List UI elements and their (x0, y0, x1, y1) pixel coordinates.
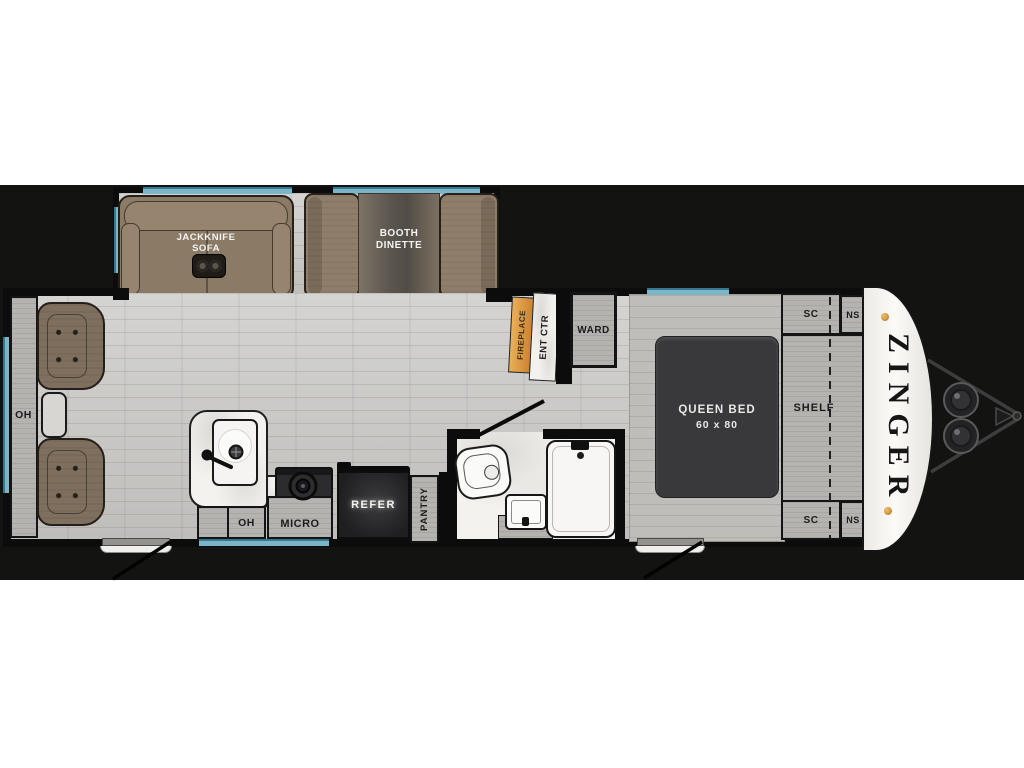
wall-top-left (3, 288, 113, 296)
wardrobe: WARD (570, 292, 617, 368)
vanity-faucet (522, 517, 529, 526)
slide-opening-stub-right (486, 288, 512, 302)
refrigerator: REFER (337, 471, 410, 539)
bedroom-window (647, 288, 729, 295)
sofa-cupholders (192, 254, 226, 278)
bathtub (546, 440, 616, 538)
bathroom-wall-top-right (543, 429, 618, 439)
microwave-label: MICRO (269, 510, 331, 537)
slide-opening-stub-left (113, 288, 129, 300)
shelf-label: SHELF (783, 400, 845, 416)
shower-fixture (571, 441, 589, 450)
sc-bottom-label: SC (804, 515, 819, 526)
jackknife-sofa: JACKKNIFE SOFA (118, 195, 294, 300)
kitchen-overhead-label: OH (229, 508, 264, 537)
marker-light-top (881, 313, 889, 321)
kitchen-sink (212, 419, 258, 486)
rear-overhead-label: OH (9, 407, 38, 422)
floorplan-canvas: JACKKNIFE SOFA BOOTH DINETTE OH OH MICRO (0, 0, 1024, 768)
fireplace-label: FIREPLACE (515, 310, 527, 360)
side-table (41, 392, 67, 438)
storage-sc-top: SC (781, 293, 841, 335)
vanity-sink (505, 494, 547, 530)
slideout-window-left (143, 187, 292, 194)
ns-bottom-label: NS (846, 515, 860, 525)
bathroom-wall-top-left (447, 429, 480, 439)
microwave-cabinet: MICRO (267, 496, 333, 539)
chair-cushion (47, 314, 87, 378)
queen-bed: QUEEN BED 60 x 80 (655, 336, 779, 498)
sofa-back-cushion (124, 201, 288, 231)
theater-chair-bottom (37, 438, 105, 526)
bathroom-wall-right (615, 429, 625, 546)
sc-top-label: SC (804, 309, 819, 320)
bed-name-label: QUEEN BED (678, 404, 755, 416)
marker-light-bottom (884, 507, 892, 515)
entry-door-threshold-main (102, 538, 170, 546)
entry-step-bedroom (635, 546, 705, 553)
entertainment-center-label: ENT CTR (538, 314, 551, 359)
kitchen-window (199, 539, 329, 546)
bed-size-label: 60 x 80 (696, 419, 738, 431)
dinette-bench-right (439, 193, 499, 298)
brand-logo: ZINGER (881, 333, 915, 505)
pantry: PANTRY (410, 475, 439, 543)
kitchen-overhead-cabinet: OH (197, 506, 266, 539)
ns-top-label: NS (846, 310, 860, 320)
dinette-bench-left (304, 193, 360, 298)
bathroom-wall-left (447, 429, 457, 544)
chair-cushion (47, 450, 87, 514)
entry-step-main (100, 546, 172, 553)
sofa-label: JACKKNIFE SOFA (120, 233, 292, 255)
pantry-label: PANTRY (419, 487, 430, 531)
entry-door-threshold-bedroom (637, 538, 704, 546)
dinette-label: BOOTH DINETTE (359, 228, 439, 251)
stove-back-lip (277, 469, 331, 475)
theater-chair-top (37, 302, 105, 390)
storage-shelf: SHELF (781, 334, 866, 502)
wardrobe-label: WARD (577, 325, 610, 336)
dinette-bench-left-back (308, 197, 322, 294)
storage-sc-bottom: SC (781, 500, 841, 540)
dinette-table: BOOTH DINETTE (358, 193, 440, 298)
dinette-bench-right-back (481, 197, 495, 294)
stove-cooktop (275, 467, 333, 498)
refrigerator-label: REFER (351, 499, 396, 511)
toilet (453, 442, 514, 501)
shower-drain (577, 452, 584, 459)
sink-basin (219, 430, 251, 462)
